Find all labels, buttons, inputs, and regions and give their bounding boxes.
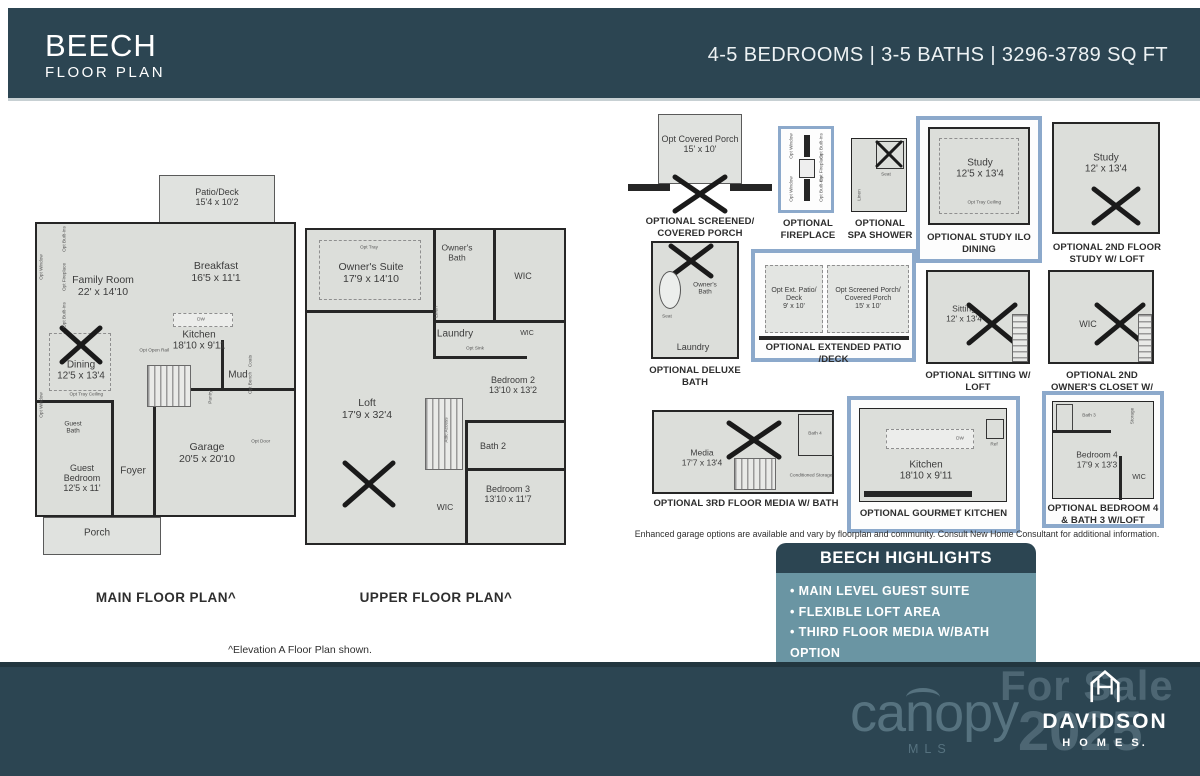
highlights-body: MAIN LEVEL GUEST SUITE FLEXIBLE LOFT ARE… [776, 573, 1036, 676]
highlight-item: MAIN LEVEL GUEST SUITE [790, 581, 1022, 602]
option-caption: OPTIONAL SPA SHOWER [845, 218, 915, 241]
room-label-wic3: WIC [437, 503, 454, 513]
shower-x-mark [877, 142, 901, 166]
room-label-wic: WIC [1132, 474, 1146, 482]
wall [111, 400, 114, 515]
option-x-mark [1094, 189, 1138, 223]
label-opt-window-2: Opt Window [790, 176, 795, 201]
counter-wall [864, 491, 972, 497]
room-label-bedroom2: Bedroom 213'10 x 13'2 [489, 375, 537, 395]
media-plan: Media17'7 x 13'4 Bath 4 Conditioned Stor… [652, 410, 834, 494]
label-opt-tray-ceiling: Opt Tray Ceiling [70, 393, 95, 398]
plan-title-block: BEECH FLOOR PLAN [45, 30, 165, 81]
wall [1053, 430, 1111, 433]
bedroom4-plan: Bath 3 Storage Bedroom 417'9 x 13'3 WIC [1052, 401, 1154, 499]
room-label-garage: Garage20'5 x 20'10 [179, 442, 235, 466]
fireplace-box [799, 159, 815, 178]
page-title: BEECH [45, 30, 165, 61]
wall [759, 336, 909, 340]
wall [153, 388, 156, 515]
room-label-kitchen: Kitchen18'10 x 9'11 [900, 460, 953, 483]
option-caption: OPTIONAL DELUXE BATH [645, 365, 745, 388]
option-card-deluxe-bath: Owner's Bath Seat Laundry OPTIONAL DELUX… [645, 241, 745, 395]
room-label-patio: Patio/Deck15'4 x 10'2 [195, 187, 239, 207]
label-opt-built-ins-2: Opt Built-Ins [820, 176, 825, 202]
option-card-study-ilo-dining: Study12'5 x 13'4 Opt Tray Ceiling OPTION… [916, 116, 1042, 263]
label-coats: Coats [249, 355, 254, 367]
option-x-mark [1097, 305, 1143, 343]
option-caption: OPTIONAL 3RD FLOOR MEDIA W/ BATH [650, 498, 842, 510]
footer-bar: canopy MLS For Sale 2025 DAVIDSON H O M … [0, 662, 1200, 776]
canopy-arc [906, 688, 940, 707]
label-dw: DW [197, 318, 205, 323]
label-storage: Storage [1131, 408, 1136, 424]
label-opt-open-rail: Opt Open Rail [139, 349, 156, 354]
option-x-mark [729, 423, 779, 457]
option-x-mark [671, 246, 711, 276]
highlight-item: THIRD FLOOR MEDIA W/BATH OPTION [790, 622, 1022, 663]
option-x-mark [675, 177, 725, 211]
room-label-foyer: Foyer [120, 465, 146, 476]
room-label-laundry: Laundry [437, 328, 473, 339]
room-label-opt-covered-porch: Opt Covered Porch15' x 10' [660, 134, 740, 154]
highlights-title: BEECH HIGHLIGHTS [776, 543, 1036, 573]
disclaimer-text: Enhanced garage options are available an… [628, 529, 1166, 539]
room-label-bath2: Bath 2 [480, 441, 506, 451]
specs-line: 4-5 BEDROOMS | 3-5 BATHS | 3296-3789 SQ … [708, 44, 1168, 67]
option-card-spa-shower: Seat Linen OPTIONAL SPA SHOWER [845, 138, 915, 240]
wall [37, 400, 111, 403]
label-seat: Seat [662, 315, 672, 320]
label-ref: Ref [990, 443, 997, 448]
room-label-study: Study12'5 x 13'4 [956, 158, 1004, 181]
dining-x-mark [62, 328, 100, 362]
wall [1119, 456, 1122, 500]
tub [1056, 404, 1073, 432]
option-card-extended-patio: Opt Ext. Patio/ Deck9' x 10' Opt Screene… [751, 249, 916, 362]
closet-plan: WIC [1048, 270, 1154, 364]
option-caption: OPTIONAL SCREENED/ COVERED PORCH [628, 216, 772, 239]
room-label-ext-patio: Opt Ext. Patio/ Deck9' x 10' [768, 287, 820, 311]
label-opt-fireplace: Opt Fireplace [63, 263, 68, 291]
room-label-family: Family Room22' x 14'10 [72, 275, 134, 299]
label-opt-tray: Opt Tray [360, 246, 378, 251]
deluxe-bath-plan: Owner's Bath Seat Laundry [651, 241, 739, 359]
room-label-screened-porch: Opt Screened Porch/ Covered Porch15' x 1… [830, 287, 906, 311]
option-caption: OPTIONAL GOURMET KITCHEN [851, 508, 1016, 520]
room-label-owners-suite: Owner's Suite17'9 x 14'10 [338, 262, 403, 286]
label-opt-sink: Opt Sink [466, 347, 484, 352]
highlight-item: FLEXIBLE LOFT AREA [790, 602, 1022, 623]
option-caption: OPTIONAL SITTING W/ LOFT [922, 370, 1034, 393]
room-label-media: Media17'7 x 13'4 [682, 448, 723, 467]
label-opt-built-ins: Opt Built-Ins [63, 226, 68, 252]
gourmet-kitchen-plan: DW Ref Kitchen18'10 x 9'11 [859, 408, 1007, 502]
elevation-footnote: ^Elevation A Floor Plan shown. [160, 644, 440, 656]
upper-floor-caption: UPPER FLOOR PLAN^ [305, 590, 567, 605]
room-label-guest-bedroom: Guest Bedroom12'5 x 11' [53, 463, 111, 493]
room-label-guest-bath: Guest Bath [60, 421, 86, 436]
stairs [734, 458, 776, 490]
label-opt-tray-ceiling: Opt Tray Ceiling [968, 201, 993, 206]
room-label-wic: WIC [1079, 319, 1097, 329]
option-highlight-frame: Opt Window Opt Built-Ins Opt Fireplace O… [778, 126, 834, 213]
room-label-wic: WIC [514, 271, 532, 281]
loft-x-mark [345, 463, 393, 505]
room-label-kitchen: Kitchen18'10 x 9'11 [173, 330, 226, 353]
upper-floor-plan: Opt Tray Owner's Suite17'9 x 14'10 Owner… [305, 228, 567, 546]
label-opt-window-2: Opt Window [40, 392, 45, 417]
wall [433, 356, 527, 359]
page-subtitle: FLOOR PLAN [45, 64, 165, 81]
wall [804, 179, 810, 201]
wall [804, 135, 810, 157]
canopy-mls-sub: MLS [908, 742, 952, 756]
label-linen: Linen [858, 189, 863, 200]
label-opt-bench: Opt Bench [249, 372, 254, 394]
room-label-wic2: WIC [520, 330, 534, 338]
header-bar: BEECH FLOOR PLAN 4-5 BEDROOMS | 3-5 BATH… [8, 8, 1200, 98]
option-card-fireplace: Opt Window Opt Built-Ins Opt Fireplace O… [770, 126, 846, 238]
room-label-dining: Dining12'5 x 13'4 [57, 360, 105, 383]
label-dw: DW [956, 437, 964, 442]
tub [659, 271, 681, 309]
room-label-bath3: Bath 3 [1082, 414, 1096, 419]
dh-monogram-icon [1084, 668, 1126, 704]
wall [465, 420, 468, 543]
study-plan: Study12'5 x 13'4 Opt Tray Ceiling [928, 127, 1030, 225]
wall [730, 184, 772, 191]
room-label-bath4: Bath 4 [807, 432, 823, 437]
label-attic-access: Attic Access [445, 417, 450, 442]
label-opt-window: Opt Window [40, 254, 45, 279]
option-card-gourmet-kitchen: DW Ref Kitchen18'10 x 9'11 OPTIONAL GOUR… [847, 396, 1020, 533]
option-card-2nd-floor-study: Study12' x 13'4 OPTIONAL 2ND FLOOR STUDY… [1048, 120, 1166, 270]
wall [433, 320, 564, 323]
stairs [147, 365, 191, 407]
option-card-bedroom4: Bath 3 Storage Bedroom 417'9 x 13'3 WIC … [1042, 391, 1164, 528]
option-card-owners-closet: WIC OPTIONAL 2ND OWNER'S CLOSET W/ LOFT [1042, 270, 1162, 398]
room-label-bedroom3: Bedroom 313'10 x 11'7 [484, 484, 531, 504]
option-caption: OPTIONAL BEDROOM 4 & BATH 3 W/LOFT [1046, 503, 1160, 526]
study-loft-plan: Study12' x 13'4 [1052, 122, 1160, 234]
floorplan-brochure-page: BEECH FLOOR PLAN 4-5 BEDROOMS | 3-5 BATH… [0, 0, 1200, 776]
room-label-study: Study12' x 13'4 [1085, 153, 1127, 176]
option-caption: OPTIONAL 2ND FLOOR STUDY W/ LOFT [1048, 242, 1166, 265]
label-seat: Seat [881, 173, 891, 178]
option-caption: OPTIONAL FIREPLACE [770, 218, 846, 241]
wall [307, 310, 435, 313]
fridge-box [986, 419, 1004, 439]
room-label-mud: Mud [228, 369, 247, 380]
option-card-screened-porch: Opt Covered Porch15' x 10' OPTIONAL SCRE… [628, 112, 772, 242]
main-floor-caption: MAIN FLOOR PLAN^ [35, 590, 297, 605]
room-label-owners-bath: Owner's Bath [688, 282, 722, 297]
label-linen: Linen [435, 306, 440, 317]
room-label-porch: Porch [84, 527, 110, 538]
stairs [1138, 314, 1152, 362]
wall [467, 468, 564, 471]
brand-name: DAVIDSON [1030, 710, 1180, 734]
option-card-media: Media17'7 x 13'4 Bath 4 Conditioned Stor… [650, 402, 842, 524]
main-floor-plan: Patio/Deck15'4 x 10'2 Family Room22' x 1… [35, 175, 297, 557]
room-label-bedroom4: Bedroom 417'9 x 13'3 [1067, 450, 1127, 469]
label-opt-door: Opt Door [251, 440, 267, 445]
option-x-mark [969, 305, 1015, 343]
wall [493, 230, 496, 320]
room-label-laundry: Laundry [677, 342, 710, 352]
brand-sub: H O M E S. [1030, 737, 1180, 749]
spa-shower-plan: Seat Linen [851, 138, 907, 212]
room-label-loft: Loft17'9 x 32'4 [342, 398, 392, 422]
label-conditioned-storage: Conditioned Storage [790, 474, 823, 479]
option-card-sitting: Sitting12' x 13'4 OPTIONAL SITTING W/ LO… [922, 270, 1034, 398]
sitting-plan: Sitting12' x 13'4 [926, 270, 1030, 364]
room-label-breakfast: Breakfast16'5 x 11'1 [191, 261, 240, 285]
option-caption: OPTIONAL STUDY ILO DINING [920, 232, 1038, 255]
option-caption: OPTIONAL EXTENDED PATIO /DECK [755, 342, 912, 365]
label-opt-built-ins-2: Opt Built-Ins [63, 302, 68, 328]
label-pantry: Pantry [209, 390, 214, 404]
wall [465, 420, 564, 423]
wall [628, 184, 670, 191]
label-opt-window: Opt Window [790, 133, 795, 158]
header-divider [8, 98, 1200, 101]
davidson-homes-logo: DAVIDSON H O M E S. [1030, 668, 1180, 749]
highlights-box: BEECH HIGHLIGHTS MAIN LEVEL GUEST SUITE … [776, 543, 1036, 676]
room-label-owners-bath: Owner's Bath [436, 243, 478, 262]
stairs [1012, 314, 1028, 362]
